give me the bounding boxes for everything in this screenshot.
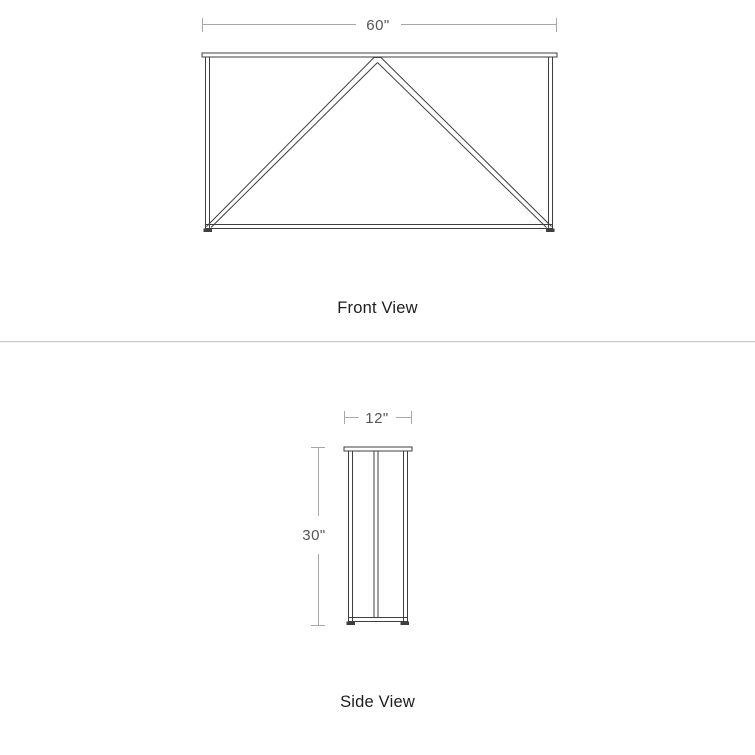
side-height-dimension-label: 30"	[302, 527, 326, 544]
side-depth-dimension: 12"	[345, 410, 412, 427]
tabletop-edge-outline	[344, 447, 412, 451]
front-leg-outline	[349, 451, 353, 622]
tabletop-outline	[202, 53, 557, 57]
front-view-label: Front View	[0, 298, 755, 318]
side-depth-dimension-label: 12"	[365, 410, 389, 427]
center-brace-edge-outline	[374, 451, 378, 618]
back-foot-glide	[401, 622, 410, 626]
side-view-outline	[344, 447, 412, 625]
front-view-drawing: 60"	[0, 0, 755, 341]
product-dimension-sheet: 60" Front View 12"	[0, 0, 755, 755]
left-leg-outline	[206, 57, 210, 229]
right-leg-outline	[549, 57, 553, 229]
front-view-outline	[202, 53, 557, 232]
left-foot-glide	[204, 229, 213, 233]
bottom-stretcher-outline	[349, 618, 408, 622]
side-height-dimension: 30"	[302, 448, 326, 626]
bottom-stretcher-outline	[206, 225, 553, 229]
side-view-label: Side View	[0, 692, 755, 712]
front-width-dimension-label: 60"	[366, 17, 390, 34]
front-width-dimension: 60"	[203, 17, 557, 34]
diagonal-brace-left-inner-line	[211, 63, 378, 228]
front-foot-glide	[347, 622, 356, 626]
back-leg-outline	[404, 451, 408, 622]
section-divider	[0, 341, 755, 342]
right-foot-glide	[546, 229, 555, 233]
diagonal-brace-outer-line	[207, 58, 552, 227]
diagonal-brace-right-inner-line	[378, 63, 547, 228]
